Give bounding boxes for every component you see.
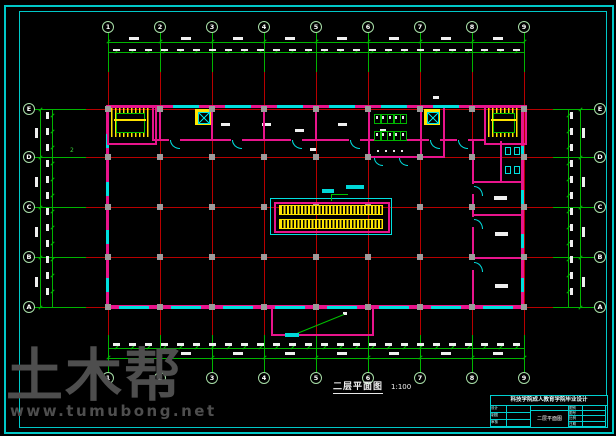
dim-text	[465, 343, 472, 346]
toilet-fixture-icon	[389, 116, 391, 119]
dim-text	[337, 37, 347, 40]
dim-text	[582, 177, 585, 187]
wall-right-wing-divider	[472, 214, 522, 216]
grid-bubble-left-A: A	[23, 301, 35, 313]
dim-text	[353, 343, 360, 346]
grid-bubble-left-C: C	[23, 201, 35, 213]
column-square	[521, 204, 527, 210]
room-label	[338, 123, 347, 126]
column-square	[313, 304, 319, 310]
grid-bubble-top-6: 6	[362, 21, 374, 33]
toilet-dot-icon	[385, 150, 387, 152]
grid-row-stem-right	[553, 307, 594, 308]
dim-text	[273, 343, 280, 346]
dim-text	[337, 352, 347, 355]
toilet-dot-icon	[401, 150, 403, 152]
dim-text	[337, 49, 344, 52]
dim-text	[46, 160, 49, 167]
dim-text	[570, 144, 573, 151]
column-square	[365, 254, 371, 260]
dim-text	[570, 272, 573, 279]
toilet-fixture-icon	[402, 116, 404, 119]
column-square	[209, 304, 215, 310]
column-square	[209, 204, 215, 210]
column-square	[209, 254, 215, 260]
dim-text	[209, 49, 216, 52]
room-label	[295, 129, 304, 132]
dim-text	[570, 128, 573, 135]
toilet-fixture-icon	[505, 147, 511, 155]
dim-text	[369, 49, 376, 52]
escalator-note-text	[322, 189, 334, 193]
column-square	[157, 204, 163, 210]
column-square	[521, 154, 527, 160]
window-bottom	[171, 306, 201, 309]
wall-toilet-left	[368, 105, 370, 158]
dim-text	[570, 112, 573, 119]
title-block: 科技学院成人教育学院毕业设计 二层平面图 设计制图审核图别图号比例日期	[490, 395, 608, 428]
dim-text	[570, 224, 573, 231]
dim-text	[233, 37, 243, 40]
column-square	[261, 204, 267, 210]
annotation-text	[433, 96, 439, 99]
wall-toilet-right	[420, 105, 422, 158]
title-block-drawing-name: 二层平面图	[531, 411, 569, 427]
grid-bubble-bottom-8: 8	[466, 372, 478, 384]
grid-col-stem-bottom	[264, 335, 265, 372]
grid-bubble-top-4: 4	[258, 21, 270, 33]
dim-text	[46, 112, 49, 119]
grid-col-stem-bottom	[212, 335, 213, 372]
elevator-right-car	[427, 112, 439, 124]
column-square	[521, 106, 527, 112]
column-square	[105, 154, 111, 160]
window-bottom	[379, 306, 409, 309]
dim-text	[321, 49, 328, 52]
dim-text	[129, 49, 136, 52]
dim-text	[582, 277, 585, 287]
window-bottom	[223, 306, 253, 309]
dim-text	[193, 343, 200, 346]
drawing-scale: 1:100	[391, 383, 411, 391]
dim-text	[225, 343, 232, 346]
column-square	[105, 254, 111, 260]
dim-text	[46, 272, 49, 279]
window-bottom	[119, 306, 149, 309]
column-square	[365, 106, 371, 112]
column-square	[365, 154, 371, 160]
dim-text	[570, 208, 573, 215]
room-label	[494, 196, 507, 200]
wall-elevator-side	[443, 105, 445, 158]
dim-text	[441, 352, 451, 355]
toilet-fixture-icon	[389, 133, 391, 136]
dim-text	[570, 192, 573, 199]
dim-text	[417, 49, 424, 52]
dim-text	[35, 128, 38, 138]
dim-text	[145, 49, 152, 52]
column-square	[313, 154, 319, 160]
grid-row-stem-right	[553, 109, 594, 110]
title-block-field-label: 设计	[491, 406, 507, 413]
dim-text	[321, 343, 328, 346]
grid-col-stem-bottom	[316, 335, 317, 372]
dim-text	[449, 49, 456, 52]
dim-text	[493, 352, 503, 355]
column-square	[417, 304, 423, 310]
column-square	[521, 254, 527, 260]
dim-text	[289, 49, 296, 52]
dim-text	[353, 49, 360, 52]
column-square	[209, 154, 215, 160]
dim-text	[433, 343, 440, 346]
dim-text	[46, 288, 49, 295]
title-block-field-value	[507, 406, 531, 413]
drawing-title: 二层平面图1:100	[333, 379, 411, 392]
toilet-fixture-icon	[395, 116, 397, 119]
title-block-field-value	[507, 413, 531, 420]
dim-text	[35, 177, 38, 187]
dim-text	[465, 49, 472, 52]
column-square	[313, 254, 319, 260]
dim-text	[570, 176, 573, 183]
dim-text	[225, 49, 232, 52]
grid-bubble-top-1: 1	[102, 21, 114, 33]
title-block-field-label: 日期	[569, 422, 583, 427]
dim-text	[285, 352, 295, 355]
grid-col-stem-bottom	[524, 335, 525, 372]
window-top	[329, 105, 355, 108]
dim-text	[385, 49, 392, 52]
grid-bubble-bottom-7: 7	[414, 372, 426, 384]
dim-text	[433, 49, 440, 52]
toilet-fixture-icon	[382, 116, 384, 119]
window-left	[106, 182, 109, 196]
dim-text	[441, 37, 451, 40]
column-square	[469, 204, 475, 210]
column-square	[261, 106, 267, 112]
column-square	[105, 304, 111, 310]
room-label	[495, 232, 508, 236]
title-block-field-label: 审核	[491, 420, 507, 427]
toilet-fixture-icon	[514, 166, 520, 174]
column-square	[157, 154, 163, 160]
dim-text	[305, 49, 312, 52]
dim-text	[285, 37, 295, 40]
dim-text	[570, 160, 573, 167]
dim-text	[305, 343, 312, 346]
dim-text	[193, 49, 200, 52]
dim-text	[497, 49, 504, 52]
column-square	[157, 106, 163, 112]
title-block-field-label: 制图	[491, 413, 507, 420]
dim-text	[181, 37, 191, 40]
toilet-fixture-icon	[505, 166, 511, 174]
dim-text	[570, 240, 573, 247]
dim-text	[401, 343, 408, 346]
dim-line-right-detail	[568, 109, 569, 307]
grid-bubble-top-7: 7	[414, 21, 426, 33]
dim-text	[401, 49, 408, 52]
column-square	[105, 204, 111, 210]
grid-bubble-left-E: E	[23, 103, 35, 115]
dim-text	[129, 37, 139, 40]
toilet-fixture-icon	[376, 116, 378, 119]
column-square	[365, 304, 371, 310]
grid-bubble-left-D: D	[23, 151, 35, 163]
dim-text	[241, 343, 248, 346]
drawing-title-text: 二层平面图	[333, 382, 383, 394]
window-bottom	[483, 306, 513, 309]
dim-text	[481, 343, 488, 346]
window-top	[173, 105, 199, 108]
dim-text	[241, 49, 248, 52]
window-right	[521, 234, 524, 248]
dim-text	[289, 343, 296, 346]
toilet-fixture-icon	[376, 133, 378, 136]
grid-row-stem-right	[553, 257, 594, 258]
dim-text	[46, 176, 49, 183]
window-bottom	[275, 306, 305, 309]
wall-right-wing-divider	[472, 181, 522, 183]
dim-text	[161, 49, 168, 52]
column-square	[313, 106, 319, 112]
dim-text	[46, 208, 49, 215]
grid-bubble-top-3: 3	[206, 21, 218, 33]
room-label	[495, 284, 508, 288]
dim-text	[46, 192, 49, 199]
staircase-right-rail	[493, 113, 515, 133]
dim-line-top-detail	[108, 52, 524, 53]
dim-text	[449, 343, 456, 346]
column-square	[157, 304, 163, 310]
column-square	[417, 254, 423, 260]
dim-text	[582, 227, 585, 237]
grid-bubble-bottom-3: 3	[206, 372, 218, 384]
dim-text	[570, 288, 573, 295]
escalator-treads	[279, 205, 383, 215]
grid-bubble-top-8: 8	[466, 21, 478, 33]
dim-text	[257, 49, 264, 52]
dim-text	[389, 37, 399, 40]
grid-row-stem-right	[553, 157, 594, 158]
window-top	[381, 105, 407, 108]
column-square	[417, 204, 423, 210]
window-right	[521, 278, 524, 292]
window-top	[225, 105, 251, 108]
wall-right-wing-toilet-divider	[500, 141, 502, 183]
grid-bubble-left-B: B	[23, 251, 35, 263]
toilet-dot-icon	[393, 150, 395, 152]
watermark-logo: 土木帮	[6, 348, 183, 405]
grid-bubble-top-2: 2	[154, 21, 166, 33]
toilet-fixture-icon	[402, 133, 404, 136]
wall-right-wing-divider	[472, 257, 522, 259]
column-square	[417, 154, 423, 160]
dim-text	[570, 256, 573, 263]
grid-bubble-top-9: 9	[518, 21, 530, 33]
column-square	[417, 106, 423, 112]
window-bottom	[431, 306, 461, 309]
elevator-left-car	[198, 112, 210, 124]
wall-elevator-bottom	[420, 156, 445, 158]
grid-bubble-bottom-5: 5	[310, 372, 322, 384]
grid-bubble-bottom-9: 9	[518, 372, 530, 384]
toilet-fixture-icon	[395, 133, 397, 136]
porch-note-text	[285, 333, 299, 337]
column-square	[521, 304, 527, 310]
grid-bubble-right-C: C	[594, 201, 606, 213]
dim-text	[113, 49, 120, 52]
grid-bubble-right-E: E	[594, 103, 606, 115]
staircase-left-arrow	[114, 119, 146, 121]
dim-text	[513, 343, 520, 346]
dim-text	[582, 128, 585, 138]
column-square	[261, 304, 267, 310]
dim-text	[493, 37, 503, 40]
title-block-field-value	[507, 420, 531, 427]
window-top	[277, 105, 303, 108]
dim-text	[417, 343, 424, 346]
escalator-treads	[279, 219, 383, 229]
dim-text	[35, 277, 38, 287]
toilet-dot-icon	[377, 150, 379, 152]
section-mark: 2	[70, 147, 74, 154]
grid-bubble-right-A: A	[594, 301, 606, 313]
dim-text	[389, 352, 399, 355]
title-block-dept-cell	[531, 406, 569, 411]
grid-row-stem-right	[553, 207, 594, 208]
dim-text	[257, 343, 264, 346]
room-label	[221, 123, 230, 126]
watermark-url: www.tumubong.net	[10, 402, 217, 420]
annotation-text	[310, 148, 316, 151]
grid-col-stem-bottom	[472, 335, 473, 372]
dim-line-left-detail	[52, 109, 53, 307]
grid-bubble-top-5: 5	[310, 21, 322, 33]
dim-text	[177, 49, 184, 52]
staircase-right-arrow	[491, 119, 516, 121]
title-block-project: 科技学院成人教育学院毕业设计	[491, 396, 607, 406]
dim-text	[35, 227, 38, 237]
grid-col-stem-bottom	[368, 335, 369, 372]
dim-text	[46, 144, 49, 151]
dim-text	[233, 352, 243, 355]
column-square	[469, 106, 475, 112]
title-block-field-value	[583, 422, 606, 427]
column-square	[469, 254, 475, 260]
dim-text	[273, 49, 280, 52]
dim-text	[481, 49, 488, 52]
column-square	[261, 254, 267, 260]
dim-text	[46, 240, 49, 247]
escalator-leader	[331, 194, 348, 195]
window-left	[106, 278, 109, 292]
column-square	[469, 304, 475, 310]
escalator-leader	[331, 194, 332, 201]
dim-text	[497, 343, 504, 346]
column-square	[261, 154, 267, 160]
dim-text	[46, 128, 49, 135]
dim-text	[209, 343, 216, 346]
cad-canvas: 二层平面图1:100 科技学院成人教育学院毕业设计 二层平面图 设计制图审核图别…	[0, 0, 616, 436]
toilet-fixture-icon	[382, 133, 384, 136]
grid-bubble-right-B: B	[594, 251, 606, 263]
column-square	[105, 106, 111, 112]
dim-text	[337, 343, 344, 346]
dim-text	[46, 224, 49, 231]
column-square	[469, 154, 475, 160]
dim-text	[385, 343, 392, 346]
column-square	[157, 254, 163, 260]
toilet-fixture-icon	[514, 147, 520, 155]
dim-text	[46, 256, 49, 263]
dim-text	[513, 49, 520, 52]
staircase-left-rail	[116, 113, 145, 133]
escalator-note-text	[346, 185, 364, 189]
window-left	[106, 230, 109, 244]
window-bottom	[327, 306, 357, 309]
dim-text	[369, 343, 376, 346]
grid-col-stem-bottom	[420, 335, 421, 372]
grid-bubble-right-D: D	[594, 151, 606, 163]
window-right	[521, 190, 524, 204]
grid-bubble-bottom-4: 4	[258, 372, 270, 384]
window-top	[433, 105, 459, 108]
